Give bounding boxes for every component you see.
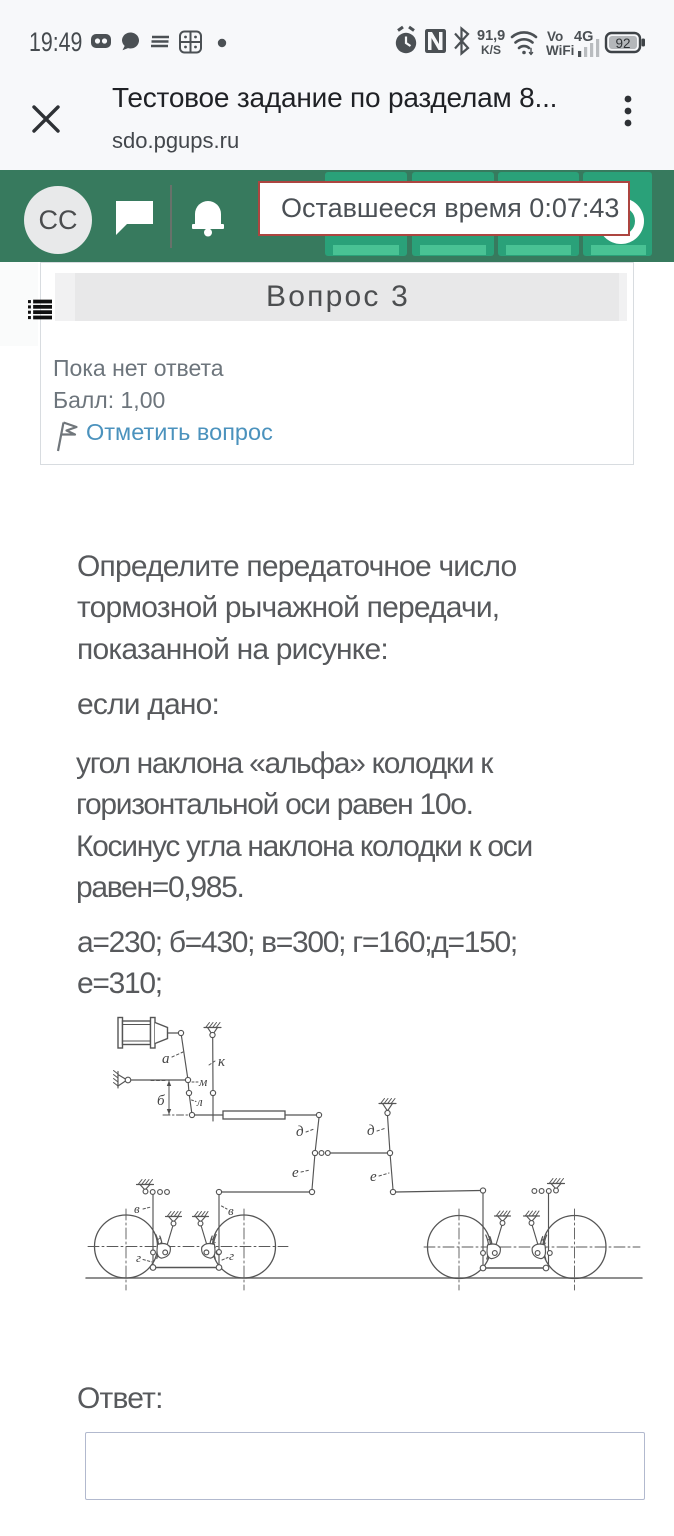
svg-text:а: а <box>162 1051 170 1067</box>
svg-text:г: г <box>136 1250 141 1265</box>
svg-text:д: д <box>296 1124 304 1140</box>
svg-text:б: б <box>157 1093 165 1109</box>
svg-text:л: л <box>196 1094 203 1109</box>
svg-text:91,9: 91,9 <box>477 28 505 44</box>
svg-text:м: м <box>198 1074 207 1089</box>
svg-text:д: д <box>367 1123 375 1139</box>
svg-text:е: е <box>292 1165 299 1181</box>
svg-text:K/S: K/S <box>481 43 501 57</box>
svg-text:к: к <box>218 1054 226 1070</box>
svg-text:г: г <box>229 1248 234 1263</box>
svg-text:е: е <box>370 1169 377 1185</box>
svg-text:4G: 4G <box>574 29 593 45</box>
svg-text:92: 92 <box>615 36 630 51</box>
svg-text:в: в <box>228 1203 234 1218</box>
svg-text:в: в <box>134 1201 140 1216</box>
svg-text:Vo: Vo <box>547 29 563 44</box>
svg-text:WiFi: WiFi <box>546 43 574 58</box>
